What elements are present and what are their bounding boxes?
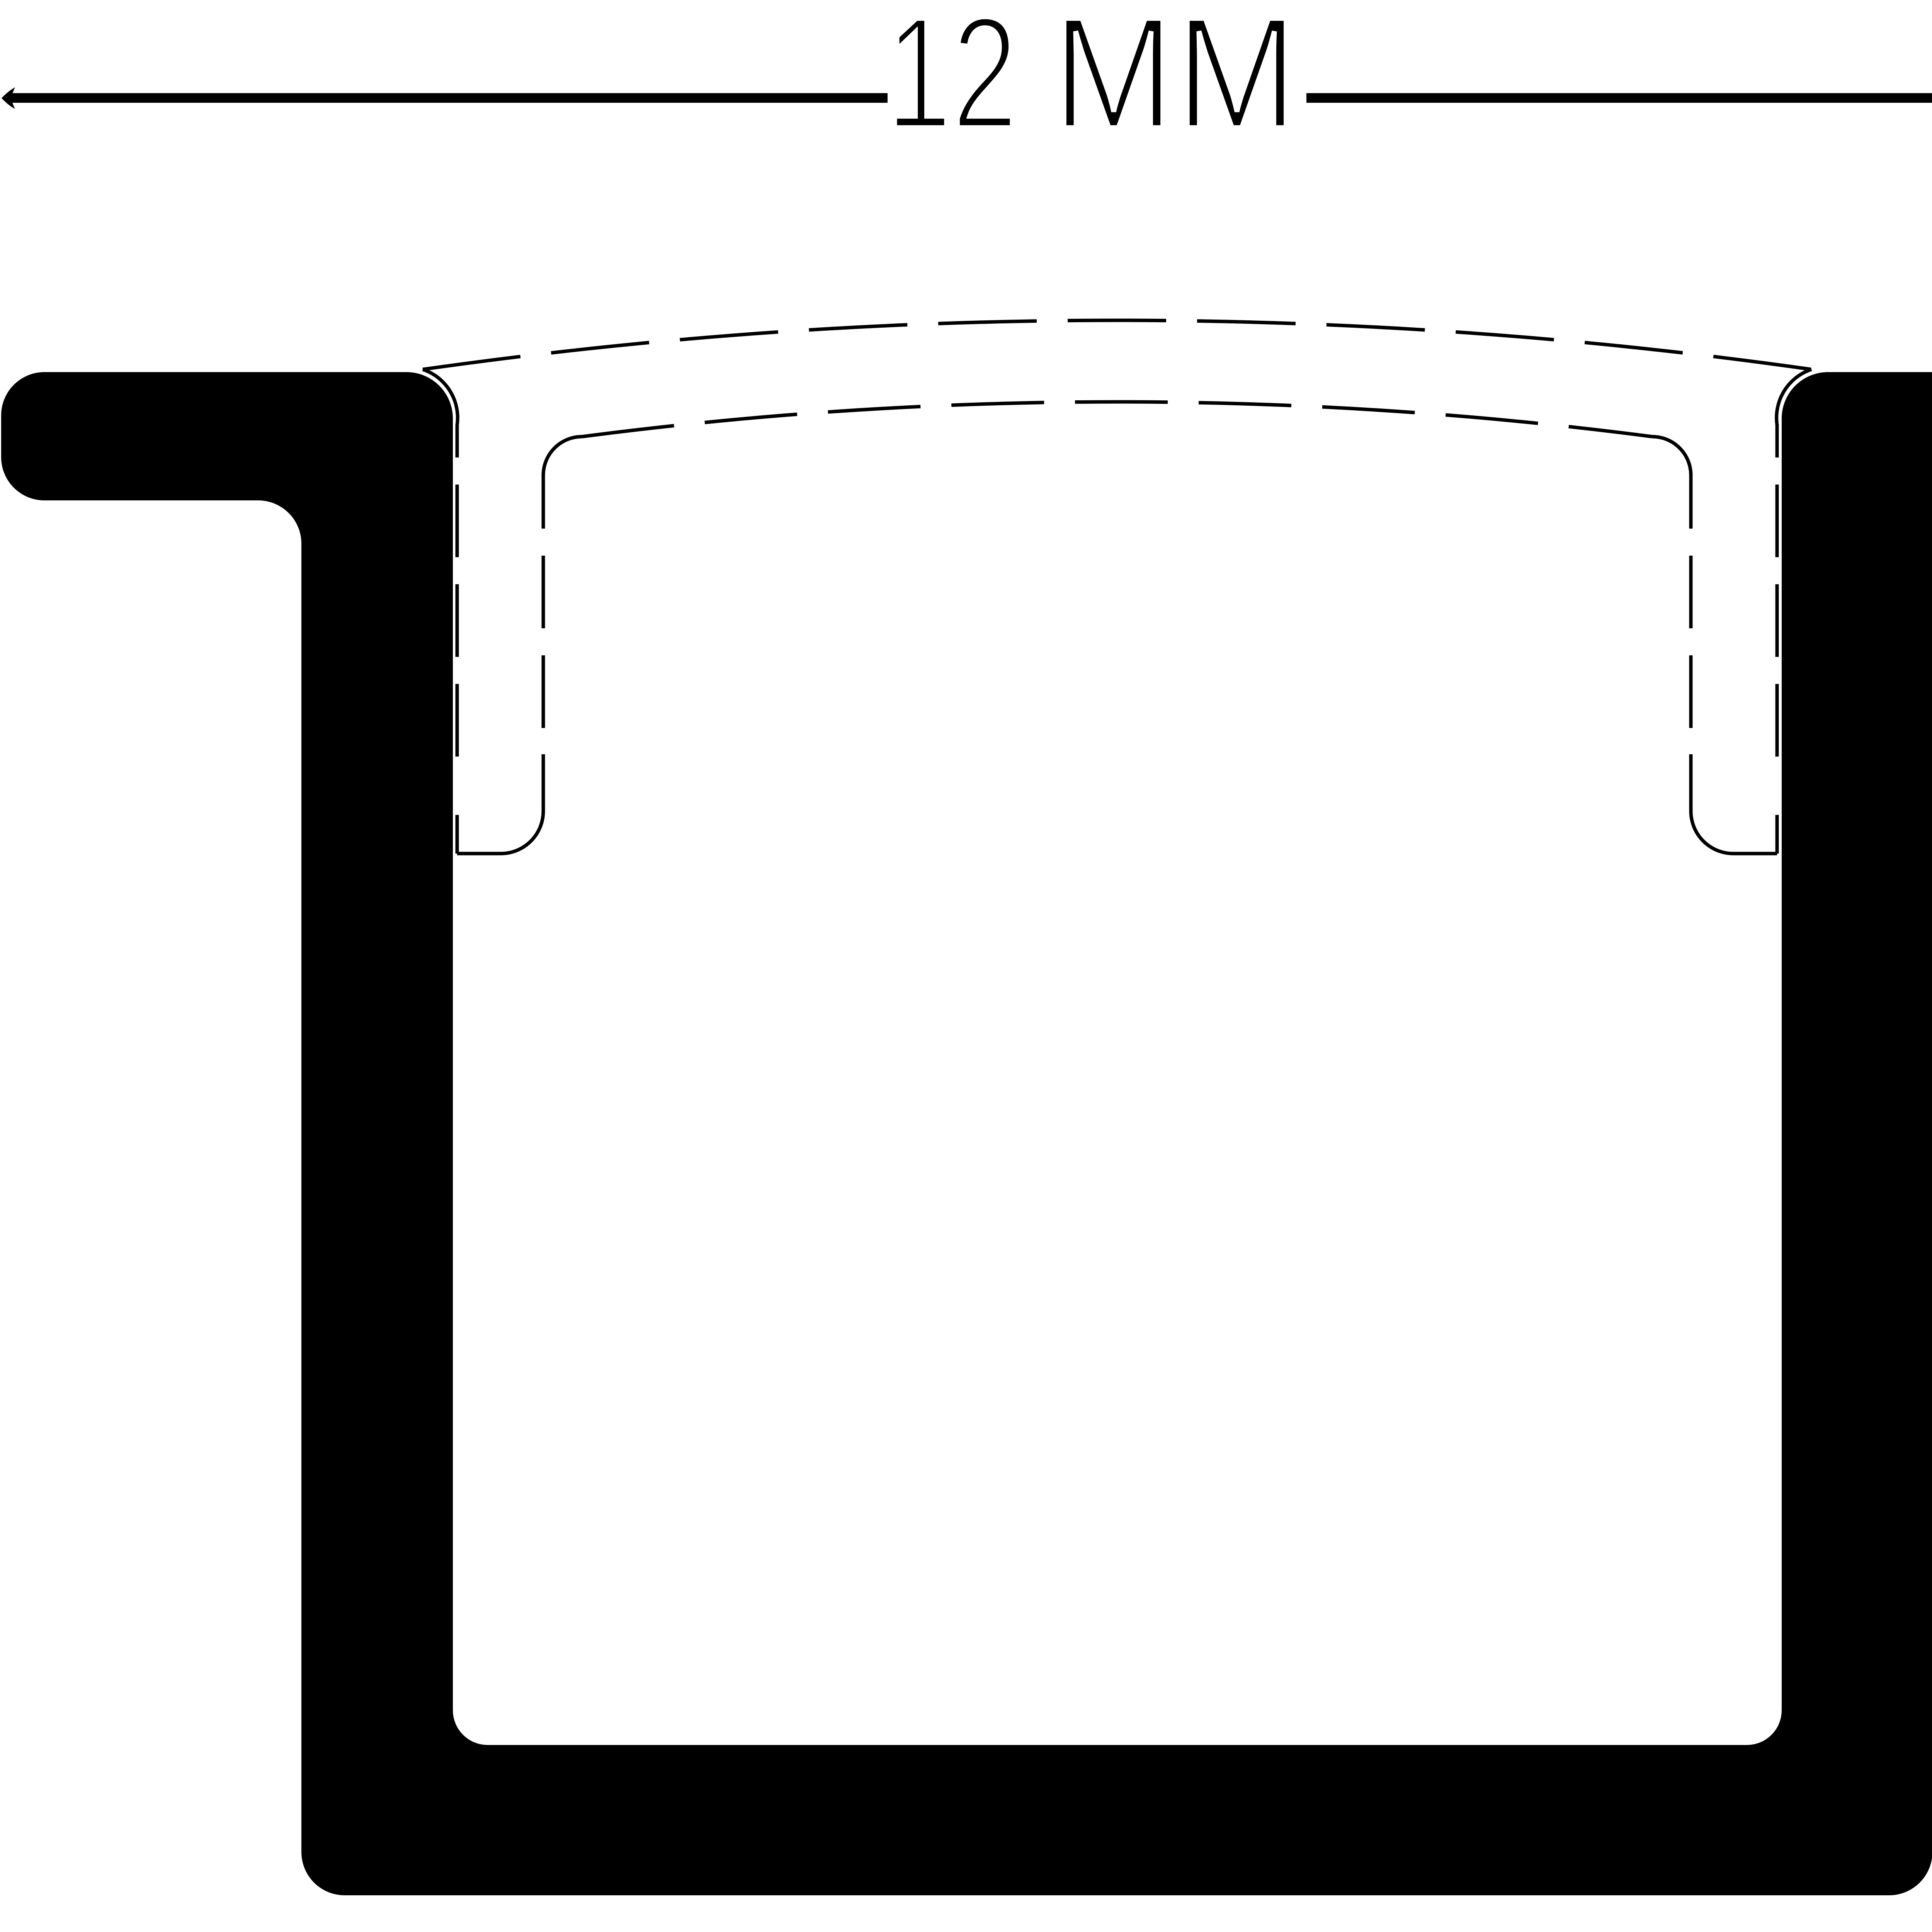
svg-text:12: 12 (886, 0, 1018, 162)
svg-text:MM: MM (1052, 0, 1298, 162)
